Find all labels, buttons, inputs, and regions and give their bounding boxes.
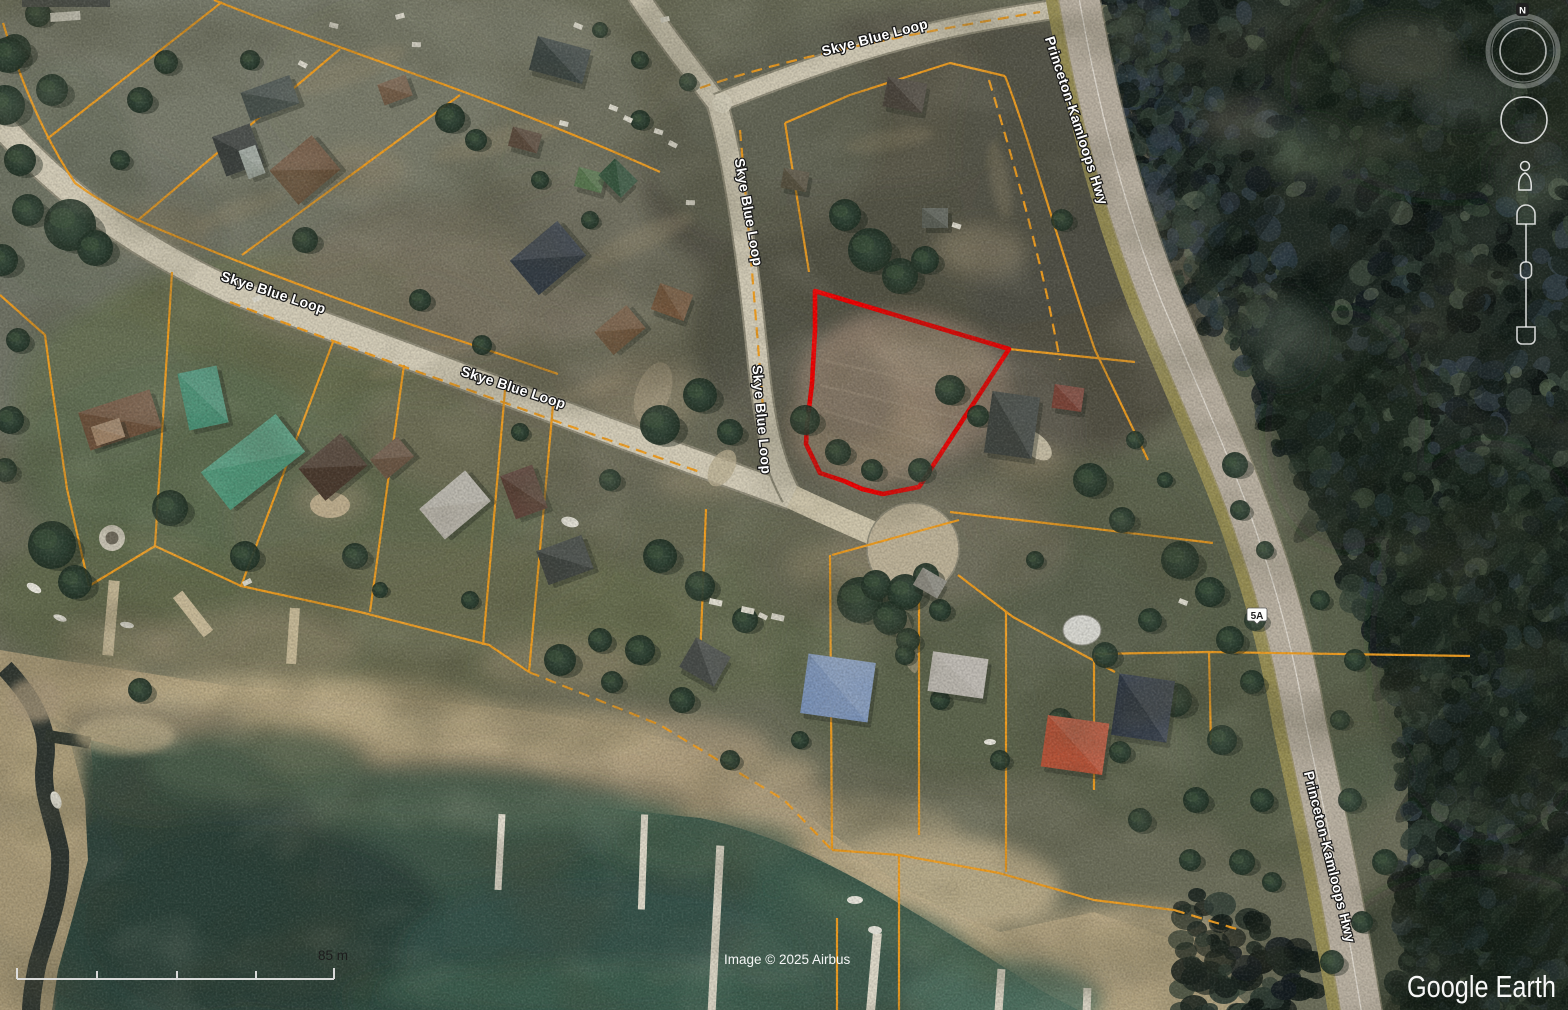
svg-text:Google Earth: Google Earth (1407, 969, 1556, 1004)
svg-text:Image © 2025 Airbus: Image © 2025 Airbus (724, 952, 851, 967)
svg-text:N: N (1519, 6, 1526, 17)
svg-text:85 m: 85 m (318, 948, 348, 963)
svg-text:5A: 5A (1251, 611, 1264, 622)
